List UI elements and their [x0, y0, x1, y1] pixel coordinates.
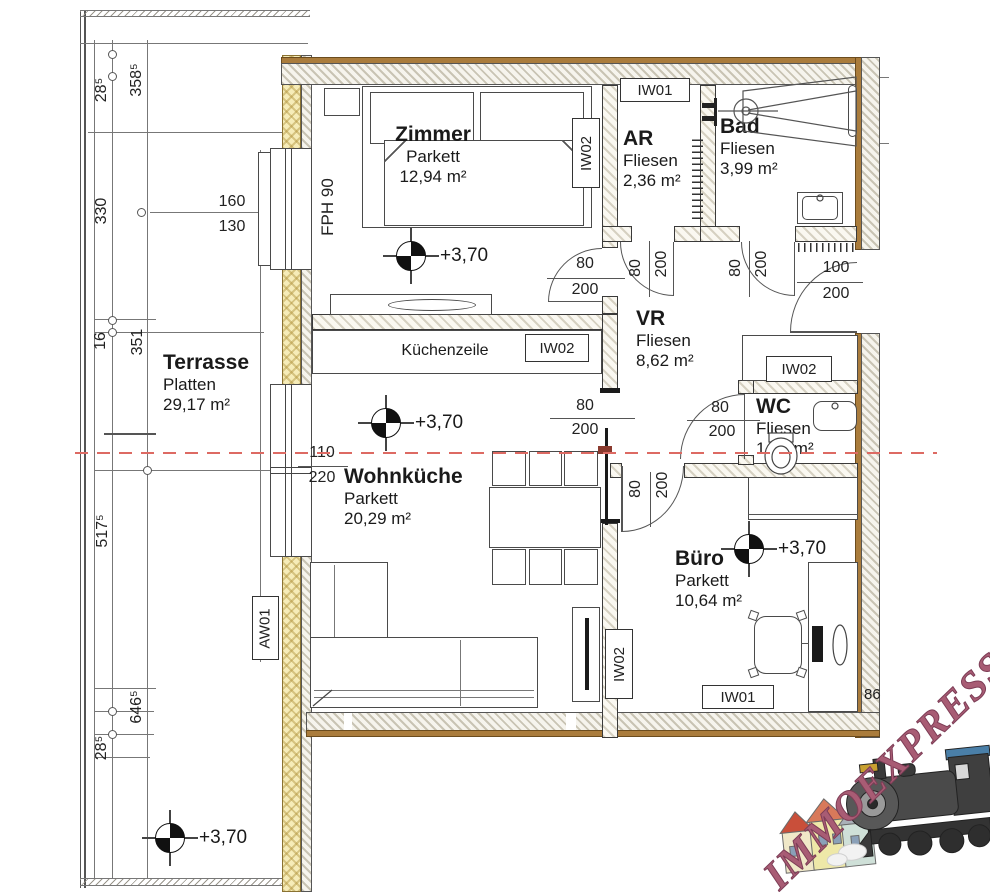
wc-basin-tap — [832, 403, 838, 409]
section-line — [75, 452, 937, 454]
sofa-corner-line — [313, 690, 332, 706]
basin-tap — [817, 195, 823, 201]
shower-faucet — [702, 98, 717, 126]
floor-plan: 28⁵ 358⁵ 330 16 351 517⁵ 646⁵ 28⁵ — [0, 0, 990, 892]
desk-keyboard — [833, 625, 847, 665]
lineart-overlay — [0, 0, 990, 892]
